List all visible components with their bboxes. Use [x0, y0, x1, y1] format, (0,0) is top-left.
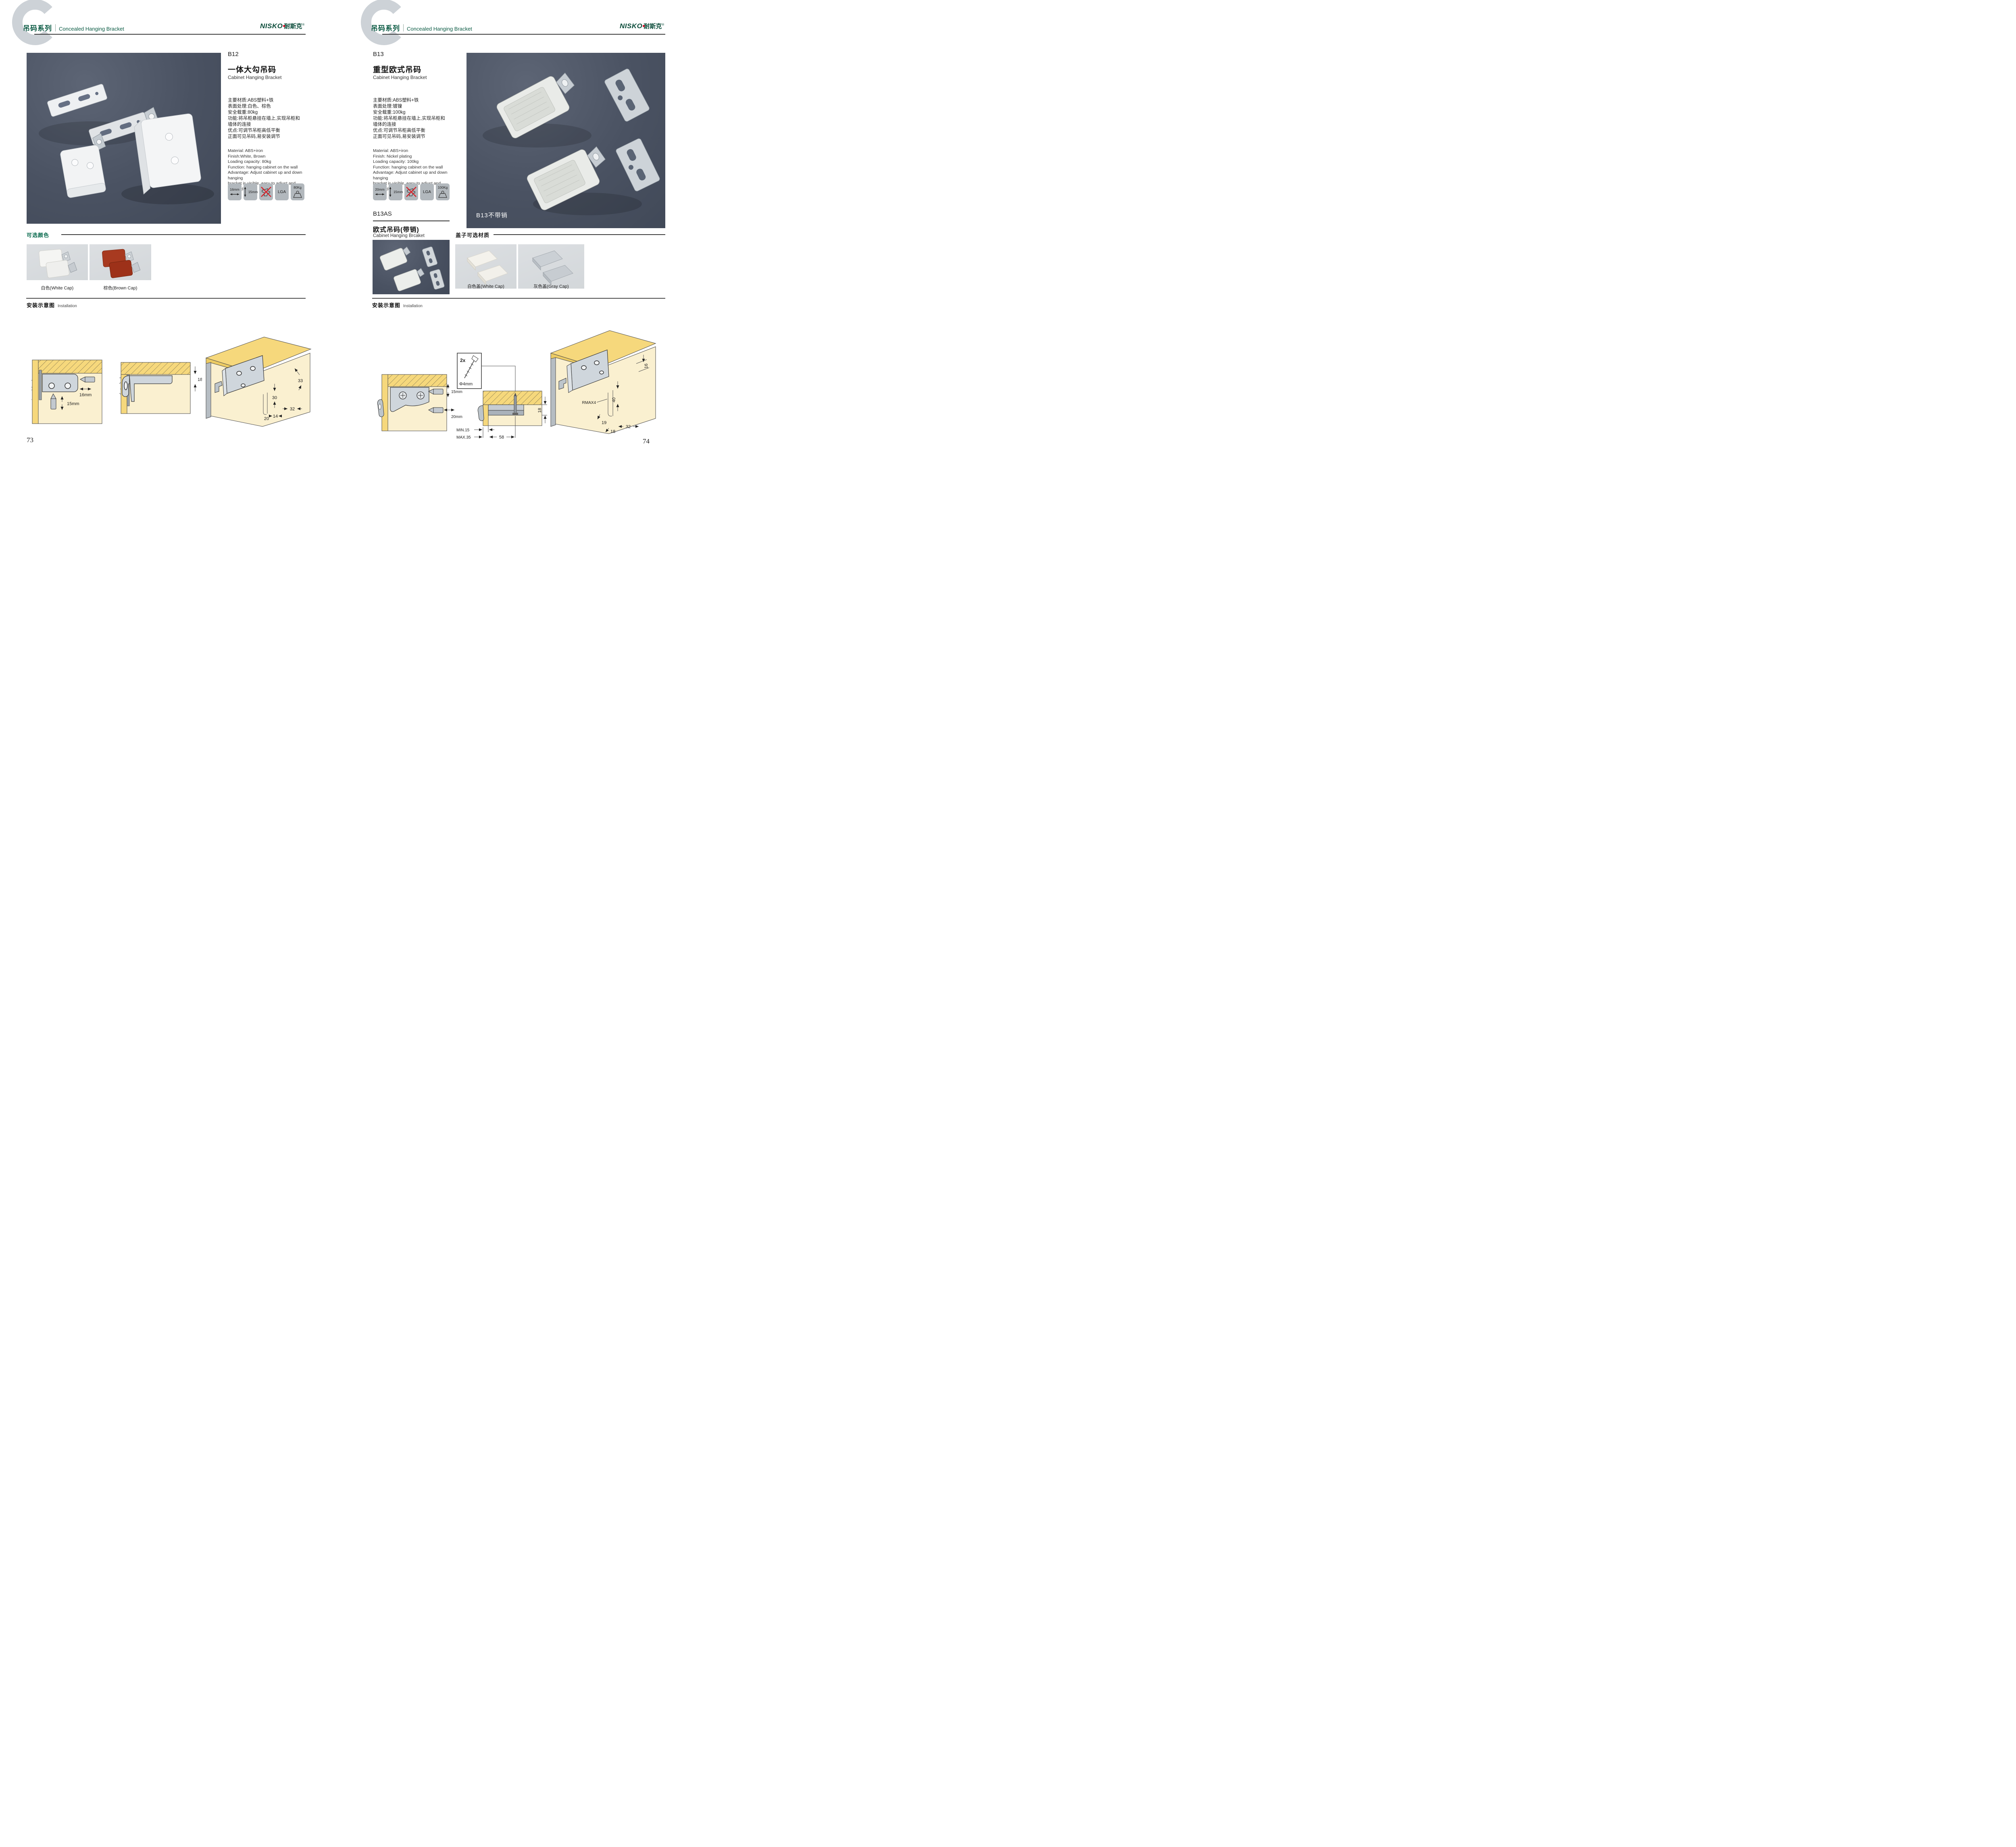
spec-line: Loading capacity: 80kg	[228, 159, 310, 165]
page-number: 74	[643, 437, 650, 445]
spec-line: Function: hanging cabinet on the wall	[228, 165, 310, 171]
sub-product-rule	[373, 220, 450, 221]
panel-width-icon: 16mm	[228, 183, 242, 200]
spec-line: Material: ABS+iron	[228, 148, 310, 154]
dim-label: 32	[290, 407, 295, 412]
page-number: 73	[27, 436, 33, 444]
screw-diameter: Φ4mm	[459, 382, 473, 387]
product-code: B12	[228, 51, 239, 58]
caps-section-rule	[494, 234, 665, 235]
color-option-label: 白色(White Cap)	[27, 285, 88, 291]
page-header: 吊码系列 Concealed Hanging Bracket	[23, 23, 124, 33]
dim-label: MAX.35	[456, 435, 471, 439]
dim-label: 14	[273, 414, 278, 419]
product-name-cn: 一体大勾吊码	[228, 64, 276, 75]
dim-label: 18	[198, 377, 202, 382]
spec-line: 正面可见吊码,易安装调节	[228, 134, 308, 140]
dim-label: MIN.15	[456, 428, 470, 433]
spec-line: Material: ABS+iron	[373, 148, 456, 154]
install-diagram-3d: 16 40 RMAX4 19 18 32	[548, 325, 658, 435]
feature-icons: 20mm 15mm LGA 100Kg	[373, 183, 450, 200]
b13-photo-illustration	[467, 53, 665, 228]
spec-line: Finish:White, Brown	[228, 154, 310, 160]
header-divider	[55, 24, 56, 31]
logo-red-dot	[643, 25, 645, 27]
color-option-photo-white	[27, 244, 88, 280]
header-divider	[403, 24, 404, 31]
spec-line: 功能:将吊柜悬挂在墙上,实现吊柜和	[228, 116, 308, 122]
header-rule	[382, 34, 665, 35]
install-diagram-hook: 18	[119, 361, 202, 415]
cap-option-photo-gray	[518, 244, 584, 289]
brand-logo: NISKO耐斯克®	[620, 22, 664, 30]
spec-line: 墙体的连接	[228, 122, 308, 128]
install-diagram-3d: 33 30 32 20 14	[203, 333, 312, 428]
panel-width-icon: 20mm	[373, 183, 387, 200]
product-name-en: Cabinet Hanging Bracket	[228, 75, 281, 80]
spec-line: 安全载重:100kg	[373, 110, 454, 116]
product-code: B13	[373, 51, 384, 58]
install-diagram-screws: 15mm 20mm	[377, 365, 464, 433]
caps-section-title: 盖子可选材质	[456, 231, 489, 239]
sub-product-name-en: Cabinet Hanging Brcaket	[373, 233, 425, 238]
install-section-title: 安装示意图 Installation	[372, 301, 423, 309]
spec-line: 正面可见吊码,易安装调节	[373, 134, 454, 140]
series-title-en: Concealed Hanging Bracket	[407, 26, 472, 32]
b13as-photo-illustration	[373, 240, 450, 294]
install-section-title: 安装示意图 Installation	[27, 301, 77, 309]
brand-logo: NISKO耐斯克®	[260, 22, 304, 30]
no-drill-icon	[404, 183, 418, 200]
series-title-en: Concealed Hanging Bracket	[59, 26, 124, 32]
product-name-en: Cabinet Hanging Bracket	[373, 75, 427, 80]
color-option-photo-brown	[90, 244, 151, 280]
dim-label: 40	[612, 397, 616, 402]
dim-label: 18	[610, 429, 615, 434]
brand-cn: 耐斯克	[284, 23, 302, 30]
load-capacity-icon: 100Kg	[436, 183, 450, 200]
cap-option-label: 白色盖(White Cap)	[455, 283, 516, 289]
dim-label: 33	[298, 379, 303, 383]
install-section-rule	[26, 298, 306, 299]
dim-label: 30	[272, 395, 277, 400]
spec-line: 功能:将吊柜悬挂在墙上,实现吊柜和	[373, 116, 454, 122]
product-photo-b12	[27, 53, 221, 224]
dim-label: 20	[264, 416, 269, 421]
colors-section-rule	[61, 234, 306, 235]
page-header: 吊码系列 Concealed Hanging Bracket	[371, 23, 472, 33]
dim-label: RMAX4	[582, 401, 596, 405]
specs-cn: 主要材质:ABS塑料+铁 表面处理:镀镍 安全载重:100kg 功能:将吊柜悬挂…	[373, 98, 454, 140]
spec-line: Advantage: Adjust cabinet up and down ha…	[228, 170, 310, 181]
spec-line: Function: hanging cabinet on the wall	[373, 165, 456, 171]
dim-label: 16	[644, 364, 649, 368]
install-section-rule	[372, 298, 665, 299]
spec-line: 表面处理:白色、棕色	[228, 104, 308, 110]
page-right: 吊码系列 Concealed Hanging Bracket NISKO耐斯克®…	[338, 0, 676, 462]
brand-latin: NISKO	[620, 22, 642, 30]
dim-label: 16mm	[79, 393, 92, 397]
header-rule	[34, 34, 306, 35]
sub-product-code: B13AS	[373, 210, 392, 217]
colors-section-title: 可选颜色	[27, 231, 49, 239]
sub-product-name-cn: 欧式吊码(带销)	[373, 224, 419, 234]
panel-thickness-icon: 15mm	[244, 183, 257, 200]
color-option-label: 棕色(Brown Cap)	[90, 285, 151, 291]
spec-line: 主要材质:ABS塑料+铁	[228, 98, 308, 104]
registered-mark: ®	[302, 23, 304, 27]
brand-latin: NISKO	[260, 22, 283, 30]
product-photo-b13: B13不带销	[467, 53, 665, 228]
lga-cert-icon: LGA	[420, 183, 434, 200]
panel-thickness-icon: 15mm	[389, 183, 402, 200]
cap-option-label: 灰色盖(Gray Cap)	[518, 283, 584, 289]
b12-photo-illustration	[27, 53, 221, 224]
catalog-spread: 吊码系列 Concealed Hanging Bracket NISKO耐斯克®	[0, 0, 676, 462]
series-title-cn: 吊码系列	[371, 23, 400, 33]
spec-line: Finish: Nickel plating	[373, 154, 456, 160]
series-title-cn: 吊码系列	[23, 23, 52, 33]
feature-icons: 16mm 15mm LGA 80Kg	[228, 183, 304, 200]
specs-cn: 主要材质:ABS塑料+铁 表面处理:白色、棕色 安全载重:80kg 功能:将吊柜…	[228, 98, 308, 140]
dim-label: 32	[626, 424, 631, 429]
dim-label: 15mm	[67, 401, 79, 406]
spec-line: Loading capacity: 100kg	[373, 159, 456, 165]
screw-qty: 2x	[460, 358, 466, 363]
spec-line: 优点:可调节吊柜高低平衡	[373, 128, 454, 134]
page-left: 吊码系列 Concealed Hanging Bracket NISKO耐斯克®	[0, 0, 338, 462]
product-photo-b13as	[373, 240, 450, 294]
install-diagram-section: 16mm 15mm	[31, 357, 106, 426]
spec-line: 安全载重:80kg	[228, 110, 308, 116]
install-diagram-rail-screw: 2x Φ4mm 18 MIN.15	[455, 352, 548, 439]
spec-line: 墙体的连接	[373, 122, 454, 128]
spec-line: 优点:可调节吊柜高低平衡	[228, 128, 308, 134]
registered-mark: ®	[662, 23, 664, 27]
product-name-cn: 重型欧式吊码	[373, 64, 421, 75]
spec-line: 主要材质:ABS塑料+铁	[373, 98, 454, 104]
no-drill-icon	[259, 183, 273, 200]
cap-option-photo-white	[455, 244, 516, 289]
photo-caption: B13不带销	[476, 211, 508, 219]
lga-cert-icon: LGA	[275, 183, 289, 200]
dim-label: 19	[602, 420, 606, 425]
brand-cn: 耐斯克	[644, 23, 662, 30]
spec-line: 表面处理:镀镍	[373, 104, 454, 110]
load-capacity-icon: 80Kg	[291, 183, 304, 200]
dim-label: 58	[499, 435, 504, 439]
spec-line: Advantage: Adjust cabinet up and down ha…	[373, 170, 456, 181]
dim-label: 18	[537, 408, 542, 413]
logo-red-dot	[283, 25, 285, 27]
